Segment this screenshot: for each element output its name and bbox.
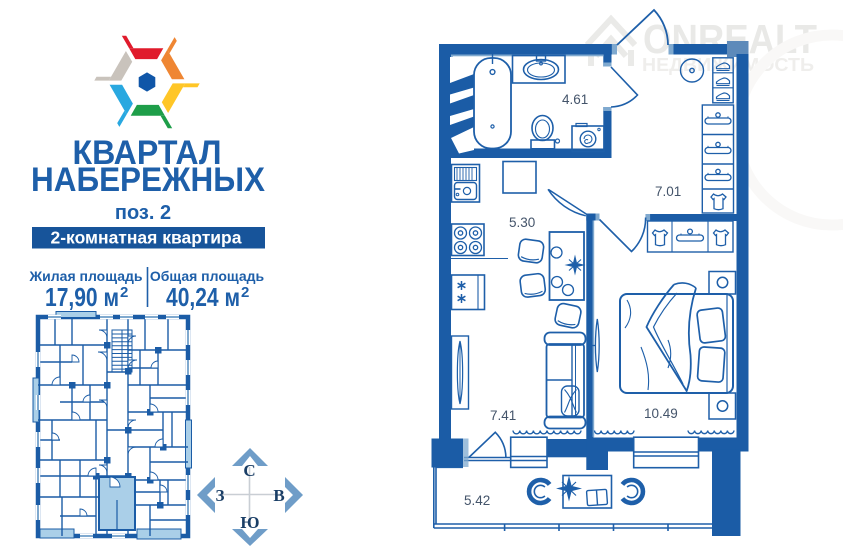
svg-text:5.42: 5.42: [464, 493, 490, 508]
svg-text:4.61: 4.61: [562, 92, 588, 107]
svg-text:10.49: 10.49: [644, 406, 678, 421]
svg-text:5.30: 5.30: [509, 215, 535, 230]
svg-text:2-комнатная квартира: 2-комнатная квартира: [51, 228, 242, 248]
svg-text:2: 2: [241, 284, 249, 301]
svg-text:поз. 2: поз. 2: [115, 202, 171, 224]
svg-text:З: З: [216, 486, 225, 505]
svg-text:В: В: [273, 486, 284, 505]
svg-text:С: С: [243, 461, 255, 480]
svg-text:Ю: Ю: [240, 513, 259, 532]
svg-text:2: 2: [120, 284, 128, 301]
svg-text:НАБЕРЕЖНЫХ: НАБЕРЕЖНЫХ: [31, 161, 265, 199]
svg-text:7.41: 7.41: [490, 408, 516, 423]
svg-text:17,90 м: 17,90 м: [45, 282, 119, 312]
svg-text:7.01: 7.01: [655, 184, 681, 199]
svg-text:40,24 м: 40,24 м: [166, 282, 240, 312]
